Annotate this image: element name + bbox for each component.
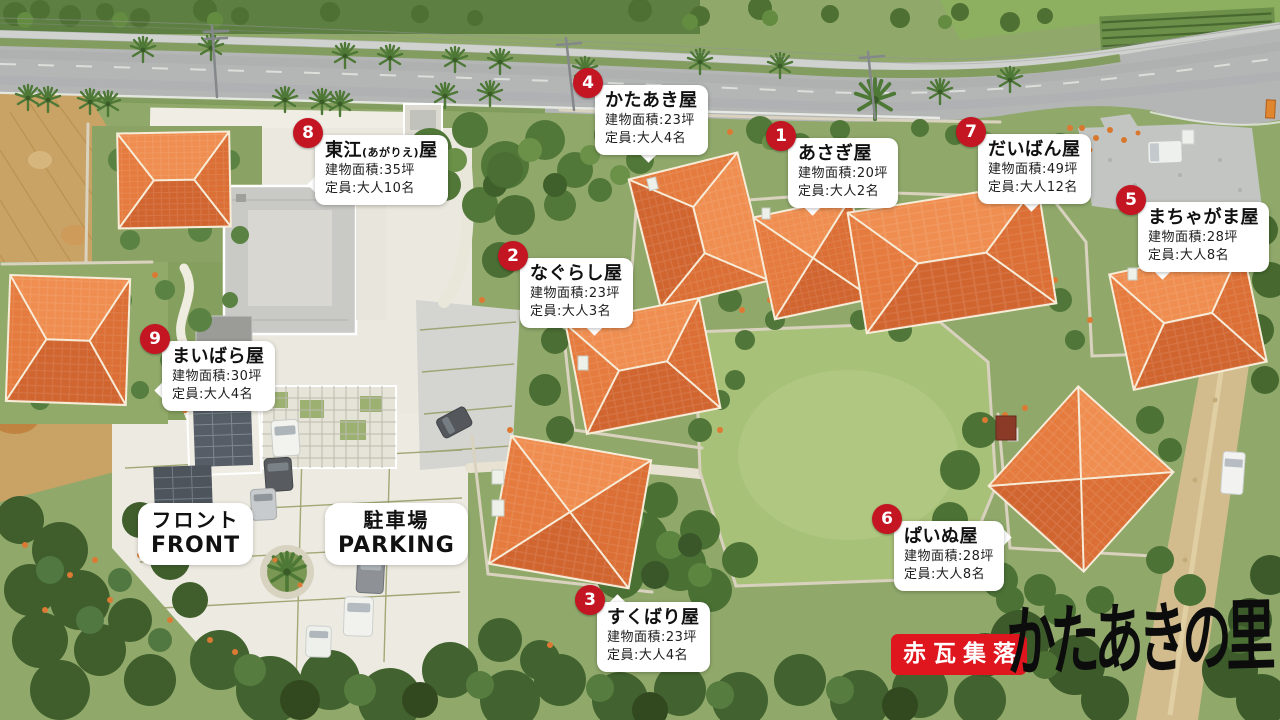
facility-capacity: 定員:大人4名 — [605, 130, 698, 148]
front-label-jp: フロント — [151, 508, 240, 533]
facility-number-badge: 9 — [140, 324, 170, 354]
facility-area: 建物面積:23坪 — [607, 629, 700, 647]
facility-number-badge: 1 — [766, 121, 796, 151]
facility-label-6: 6 ぱいぬ屋 建物面積:28坪 定員:大人8名 — [894, 521, 1004, 591]
parking-label-jp: 駐車場 — [338, 508, 455, 533]
facility-name: だいばん屋 — [988, 139, 1081, 161]
facility-capacity: 定員:大人8名 — [904, 566, 994, 584]
facility-number-badge: 8 — [293, 118, 323, 148]
facility-bubble: なぐらし屋 建物面積:23坪 定員:大人3名 — [520, 258, 633, 328]
facility-area: 建物面積:20坪 — [798, 165, 888, 183]
facility-capacity: 定員:大人8名 — [1148, 247, 1259, 265]
facility-bubble: 東江(あがりえ)屋 建物面積:35坪 定員:大人10名 — [315, 135, 448, 205]
facility-bubble: ぱいぬ屋 建物面積:28坪 定員:大人8名 — [894, 521, 1004, 591]
facility-label-3: 3 すくばり屋 建物面積:23坪 定員:大人4名 — [597, 602, 710, 672]
facility-label-7: 7 だいばん屋 建物面積:49坪 定員:大人12名 — [978, 134, 1091, 204]
facility-label-8: 8 東江(あがりえ)屋 建物面積:35坪 定員:大人10名 — [315, 135, 448, 205]
facility-label-9: 9 まいばら屋 建物面積:30坪 定員:大人4名 — [162, 341, 275, 411]
front-label: フロント FRONT — [138, 503, 253, 565]
facility-name: あさぎ屋 — [798, 143, 888, 165]
facility-area: 建物面積:28坪 — [904, 548, 994, 566]
facility-number-badge: 6 — [872, 504, 902, 534]
facility-label-2: 2 なぐらし屋 建物面積:23坪 定員:大人3名 — [520, 258, 633, 328]
facility-name: まいばら屋 — [172, 346, 265, 368]
facility-name: なぐらし屋 — [530, 263, 623, 285]
facility-label-4: 4 かたあき屋 建物面積:23坪 定員:大人4名 — [595, 85, 708, 155]
facility-name: すくばり屋 — [607, 607, 700, 629]
facility-area: 建物面積:35坪 — [325, 162, 438, 180]
facility-capacity: 定員:大人3名 — [530, 303, 623, 321]
facility-name: 東江(あがりえ)屋 — [325, 140, 438, 162]
logo-site-name: かたあきの里 — [1006, 599, 1271, 683]
facility-name: ぱいぬ屋 — [904, 526, 994, 548]
front-label-en: FRONT — [151, 533, 240, 558]
facility-capacity: 定員:大人10名 — [325, 180, 438, 198]
facility-bubble: まいばら屋 建物面積:30坪 定員:大人4名 — [162, 341, 275, 411]
facility-area: 建物面積:23坪 — [530, 285, 623, 303]
facility-label-1: 1 あさぎ屋 建物面積:20坪 定員:大人2名 — [788, 138, 898, 208]
facility-bubble: だいばん屋 建物面積:49坪 定員:大人12名 — [978, 134, 1091, 204]
facility-number-badge: 4 — [573, 68, 603, 98]
facility-area: 建物面積:30坪 — [172, 368, 265, 386]
resort-aerial-map: 4 かたあき屋 建物面積:23坪 定員:大人4名 1 あさぎ屋 建物面積:20坪… — [0, 0, 1280, 720]
facility-name: かたあき屋 — [605, 90, 698, 112]
facility-capacity: 定員:大人4名 — [172, 386, 265, 404]
facility-number-badge: 2 — [498, 241, 528, 271]
facility-number-badge: 5 — [1116, 185, 1146, 215]
facility-bubble: あさぎ屋 建物面積:20坪 定員:大人2名 — [788, 138, 898, 208]
facility-capacity: 定員:大人4名 — [607, 647, 700, 665]
parking-label-en: PARKING — [338, 533, 455, 558]
facility-bubble: まちゃがま屋 建物面積:28坪 定員:大人8名 — [1138, 202, 1269, 272]
facility-name: まちゃがま屋 — [1148, 207, 1259, 229]
facility-label-5: 5 まちゃがま屋 建物面積:28坪 定員:大人8名 — [1138, 202, 1269, 272]
facility-area: 建物面積:28坪 — [1148, 229, 1259, 247]
facility-capacity: 定員:大人2名 — [798, 183, 888, 201]
facility-bubble: かたあき屋 建物面積:23坪 定員:大人4名 — [595, 85, 708, 155]
facility-area: 建物面積:49坪 — [988, 161, 1081, 179]
facility-bubble: すくばり屋 建物面積:23坪 定員:大人4名 — [597, 602, 710, 672]
facility-number-badge: 7 — [956, 117, 986, 147]
facility-capacity: 定員:大人12名 — [988, 179, 1081, 197]
facility-number-badge: 3 — [575, 585, 605, 615]
parking-label: 駐車場 PARKING — [325, 503, 468, 565]
facility-area: 建物面積:23坪 — [605, 112, 698, 130]
